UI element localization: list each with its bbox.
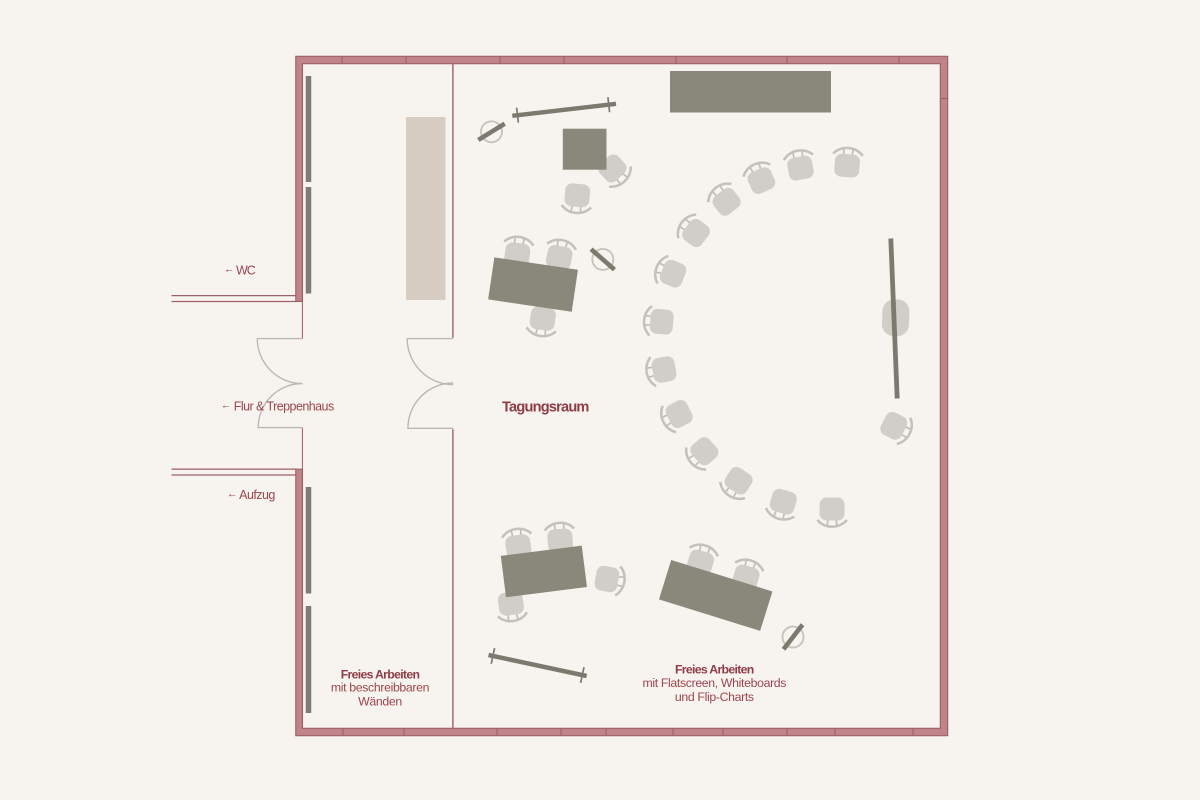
svg-text:Freies Arbeiten: Freies Arbeiten [341,667,420,681]
svg-text:← Flur & Treppenhaus: ← Flur & Treppenhaus [221,399,334,413]
svg-text:mit Flatscreen, Whiteboards: mit Flatscreen, Whiteboards [642,676,786,690]
svg-text:mit beschreibbaren: mit beschreibbaren [331,681,430,695]
svg-text:Tagungsraum: Tagungsraum [502,399,589,415]
svg-text:und Flip-Charts: und Flip-Charts [675,690,754,704]
svg-text:← WC: ← WC [224,263,256,277]
svg-text:← Aufzug: ← Aufzug [227,488,275,502]
svg-text:Freies Arbeiten: Freies Arbeiten [675,662,754,676]
svg-text:Wänden: Wänden [358,695,402,709]
